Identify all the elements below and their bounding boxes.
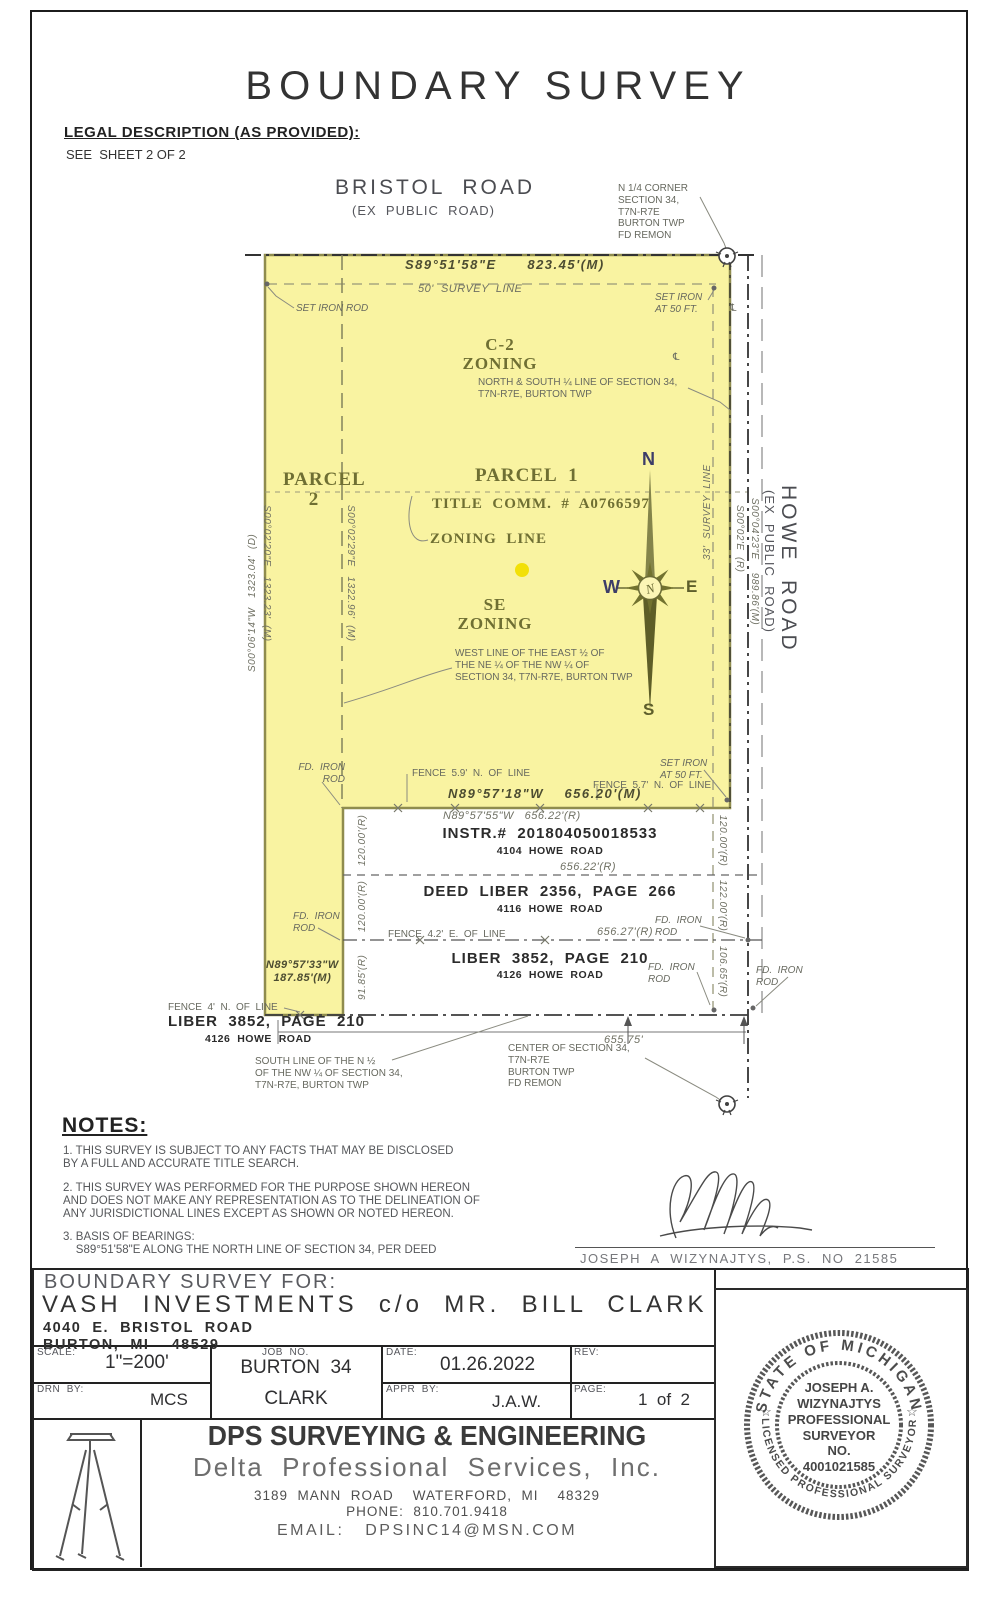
fd-iron-rod-e3-label: FD. IRON ROD — [756, 965, 803, 989]
centerline-mark-2: ℄ — [673, 352, 679, 364]
client-name: VASH INVESTMENTS c/o MR. BILL CLARK — [42, 1291, 707, 1319]
fd-iron-rod-strip-label: FD. IRON ROD — [293, 911, 340, 935]
company-email: EMAIL: DPSINC14@MSN.COM — [140, 1522, 714, 1540]
dim-west-deed: S00°06'14"W 1323.04' (D) — [247, 534, 259, 672]
note-1: 1. THIS SURVEY IS SUBJECT TO ANY FACTS T… — [63, 1145, 454, 1171]
liber-3852-sw: LIBER 3852, PAGE 210 — [168, 1013, 365, 1031]
bearing-south-r: N89°57'55"W 656.22'(R) — [443, 810, 581, 823]
set-iron-se-label: SET IRON AT 50 FT. — [660, 758, 707, 782]
road-label-howe-sub: (EX PUBLIC ROAD) — [762, 490, 777, 633]
company-phone: PHONE: 810.701.9418 — [140, 1504, 714, 1519]
dim-lot1: 656.22'(R) — [560, 861, 616, 874]
center-section-note: CENTER OF SECTION 34, T7N-R7E BURTON TWP… — [508, 1043, 630, 1090]
compass-letter-e: E — [686, 577, 697, 597]
road-label-howe: HOWE ROAD — [775, 485, 800, 653]
compass-letter-n: N — [642, 449, 655, 470]
lot1-addr: 4104 HOWE ROAD — [390, 845, 710, 857]
bearing-north: S89°51'58"E 823.45'(M) — [405, 257, 605, 272]
parcel-2-label: PARCEL 2 — [283, 470, 345, 510]
road-label-bristol-sub: (EX PUBLIC ROAD) — [352, 203, 495, 218]
fd-iron-rod-e2-label: FD. IRON ROD — [648, 962, 695, 986]
compass-letter-w: W — [603, 577, 620, 598]
notes-heading: NOTES: — [62, 1114, 147, 1138]
parcel-1-label: PARCEL 1 — [475, 466, 579, 486]
title-comm-label: TITLE COMM. # A0766597 — [432, 496, 650, 514]
survey-sheet: BOUNDARY SURVEY LEGAL DESCRIPTION (AS PR… — [0, 0, 999, 1600]
set-iron-rod-nw-label: SET IRON ROD — [296, 303, 368, 315]
lot2-addr: 4116 HOWE ROAD — [390, 903, 710, 915]
job-no-value-2: CLARK — [216, 1388, 376, 1410]
fence-42-label: FENCE 4.2' E. OF LINE — [388, 929, 506, 941]
addr-4126-sw: 4126 HOWE ROAD — [205, 1033, 312, 1045]
drawn-by-value: MCS — [150, 1390, 188, 1410]
lot1-instr: INSTR.# 201804050018533 — [390, 825, 710, 843]
quarter-line-note: NORTH & SOUTH ¼ LINE OF SECTION 34, T7N-… — [478, 377, 677, 401]
dim-west-measured: S00°02'20"E 1323.23' (M) — [260, 505, 272, 642]
surveyor-seal-box — [714, 1288, 968, 1568]
scale-value: 1"=200' — [105, 1352, 169, 1374]
dim-howe-m: S00°04'23"E 989.86'(M) — [748, 498, 760, 625]
lot2-deed: DEED LIBER 2356, PAGE 266 — [390, 883, 710, 901]
dim-right-10665: 106.65'(R) — [716, 946, 728, 997]
approved-by-label: APPR BY: — [386, 1384, 439, 1395]
zoning-line-label: ZONING LINE — [430, 531, 547, 549]
se-zoning-label: SE ZONING — [450, 596, 540, 633]
company-address: 3189 MANN ROAD WATERFORD, MI 48329 — [140, 1488, 714, 1503]
dim-right-122: 122.00'(R) — [716, 880, 728, 931]
page-label: PAGE: — [574, 1384, 606, 1395]
survey-line-33-label: 33' SURVEY LINE — [702, 464, 714, 560]
survey-line-50-label: 50' SURVEY LINE — [418, 283, 522, 296]
bearing-strip: N89°57'33"W 187.85'(M) — [266, 959, 339, 985]
zoning-c2-label: C-2 ZONING — [455, 336, 545, 373]
company-subname: Delta Professional Services, Inc. — [140, 1452, 714, 1483]
fd-iron-rod-sw-label: FD. IRON ROD — [293, 762, 345, 786]
dim-lot2: 656.27'(R) — [597, 926, 653, 939]
south-line-note: SOUTH LINE OF THE N ½ OF THE NW ¼ OF SEC… — [255, 1056, 403, 1091]
dim-howe-r: S00°02'E (R) — [733, 505, 745, 572]
date-value: 01.26.2022 — [440, 1354, 535, 1376]
signature-line — [575, 1247, 935, 1248]
fence-57-label: FENCE 5.7' N. OF LINE — [593, 780, 711, 792]
set-iron-ne-label: SET IRON AT 50 FT. — [655, 292, 702, 316]
dim-left-9185: 91.85'(R) — [357, 955, 369, 1000]
fence-59-label: FENCE 5.9' N. OF LINE — [412, 768, 530, 780]
dim-left-120a: 120.00'(R) — [357, 815, 369, 866]
approved-by-value: J.A.W. — [492, 1392, 541, 1412]
surveyor-name: JOSEPH A WIZYNAJTYS, P.S. NO 21585 — [580, 1251, 898, 1266]
rev-label: REV: — [574, 1347, 599, 1358]
road-label-bristol: BRISTOL ROAD — [335, 176, 535, 201]
west-line-note: WEST LINE OF THE EAST ½ OF THE NE ¼ OF T… — [455, 648, 633, 683]
dim-zoning-line: S00°02'29"E 1322.96' (M) — [344, 505, 356, 642]
client-address-1: 4040 E. BRISTOL ROAD — [43, 1320, 253, 1336]
dim-left-120b: 120.00'(R) — [357, 881, 369, 932]
note-2: 2. THIS SURVEY WAS PERFORMED FOR THE PUR… — [63, 1182, 480, 1222]
fd-iron-rod-e1-label: FD. IRON ROD — [655, 915, 702, 939]
drawn-by-label: DRN BY: — [37, 1384, 84, 1395]
date-label: DATE: — [386, 1347, 417, 1358]
dim-right-120: 120.00'(R) — [716, 815, 728, 866]
compass-letter-s: S — [643, 700, 654, 720]
corner-note-n-quarter: N 1/4 CORNER SECTION 34, T7N-R7E BURTON … — [618, 183, 688, 242]
centerline-mark-1: ℄ — [730, 303, 736, 315]
company-name: DPS SURVEYING & ENGINEERING — [154, 1420, 699, 1452]
page-value: 1 of 2 — [638, 1390, 690, 1410]
note-3: 3. BASIS OF BEARINGS: S89°51'58"E ALONG … — [63, 1231, 436, 1257]
scale-label: SCALE: — [37, 1347, 76, 1358]
job-no-value: BURTON 34 — [216, 1357, 376, 1379]
